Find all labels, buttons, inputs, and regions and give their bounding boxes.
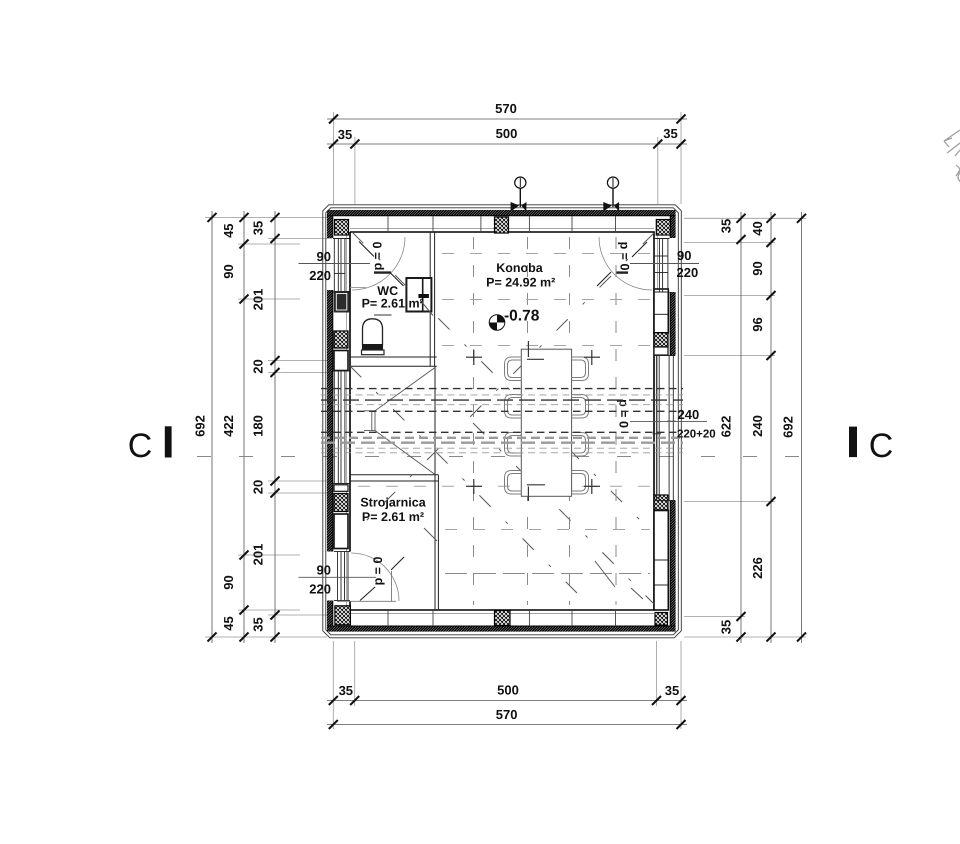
- svg-text:C: C: [869, 427, 894, 465]
- svg-text:220+20: 220+20: [677, 429, 716, 441]
- svg-text:40: 40: [750, 221, 765, 235]
- svg-text:35: 35: [663, 126, 677, 141]
- svg-text:500: 500: [497, 683, 519, 698]
- svg-text:692: 692: [781, 416, 796, 438]
- svg-text:Strojarnica: Strojarnica: [360, 496, 426, 510]
- svg-text:220: 220: [309, 582, 331, 597]
- svg-text:45: 45: [221, 223, 236, 237]
- svg-text:45: 45: [221, 616, 236, 630]
- svg-text:201: 201: [251, 544, 266, 566]
- svg-text:90: 90: [317, 249, 331, 264]
- svg-text:35: 35: [665, 683, 679, 698]
- svg-text:p = 0: p = 0: [617, 399, 631, 428]
- svg-text:220: 220: [677, 265, 699, 280]
- svg-text:35: 35: [338, 127, 352, 142]
- svg-text:35: 35: [251, 617, 266, 631]
- svg-text:35: 35: [719, 219, 734, 233]
- svg-text:90: 90: [221, 264, 236, 278]
- svg-text:p = 0: p = 0: [618, 242, 632, 271]
- svg-text:P= 2.61 m²: P= 2.61 m²: [362, 510, 424, 524]
- svg-text:90: 90: [677, 248, 691, 263]
- svg-text:570: 570: [496, 707, 518, 722]
- svg-text:240: 240: [750, 415, 765, 437]
- svg-text:P= 24.92 m²: P= 24.92 m²: [486, 276, 555, 290]
- svg-text:226: 226: [750, 557, 765, 579]
- svg-text:C: C: [128, 427, 153, 465]
- svg-text:180: 180: [251, 415, 266, 437]
- svg-text:Konoba: Konoba: [496, 261, 544, 275]
- svg-text:35: 35: [719, 620, 734, 634]
- svg-text:90: 90: [221, 575, 236, 589]
- svg-text:P= 2.61 m²: P= 2.61 m²: [362, 297, 424, 311]
- svg-text:p = 0: p = 0: [371, 242, 385, 271]
- svg-text:692: 692: [193, 415, 208, 437]
- svg-text:90: 90: [317, 563, 331, 578]
- svg-text:p = 0: p = 0: [371, 557, 385, 586]
- svg-text:90: 90: [750, 261, 765, 275]
- svg-text:35: 35: [251, 221, 266, 235]
- svg-text:220: 220: [309, 268, 331, 283]
- svg-text:500: 500: [496, 126, 518, 141]
- svg-text:96: 96: [750, 317, 765, 331]
- svg-text:422: 422: [221, 415, 236, 437]
- svg-text:20: 20: [251, 359, 266, 373]
- svg-text:570: 570: [495, 101, 517, 116]
- svg-text:-0.78: -0.78: [504, 308, 540, 325]
- svg-text:201: 201: [251, 289, 266, 311]
- svg-text:35: 35: [339, 683, 353, 698]
- svg-text:20: 20: [251, 480, 266, 494]
- svg-text:240: 240: [678, 407, 700, 422]
- svg-text:622: 622: [719, 416, 734, 438]
